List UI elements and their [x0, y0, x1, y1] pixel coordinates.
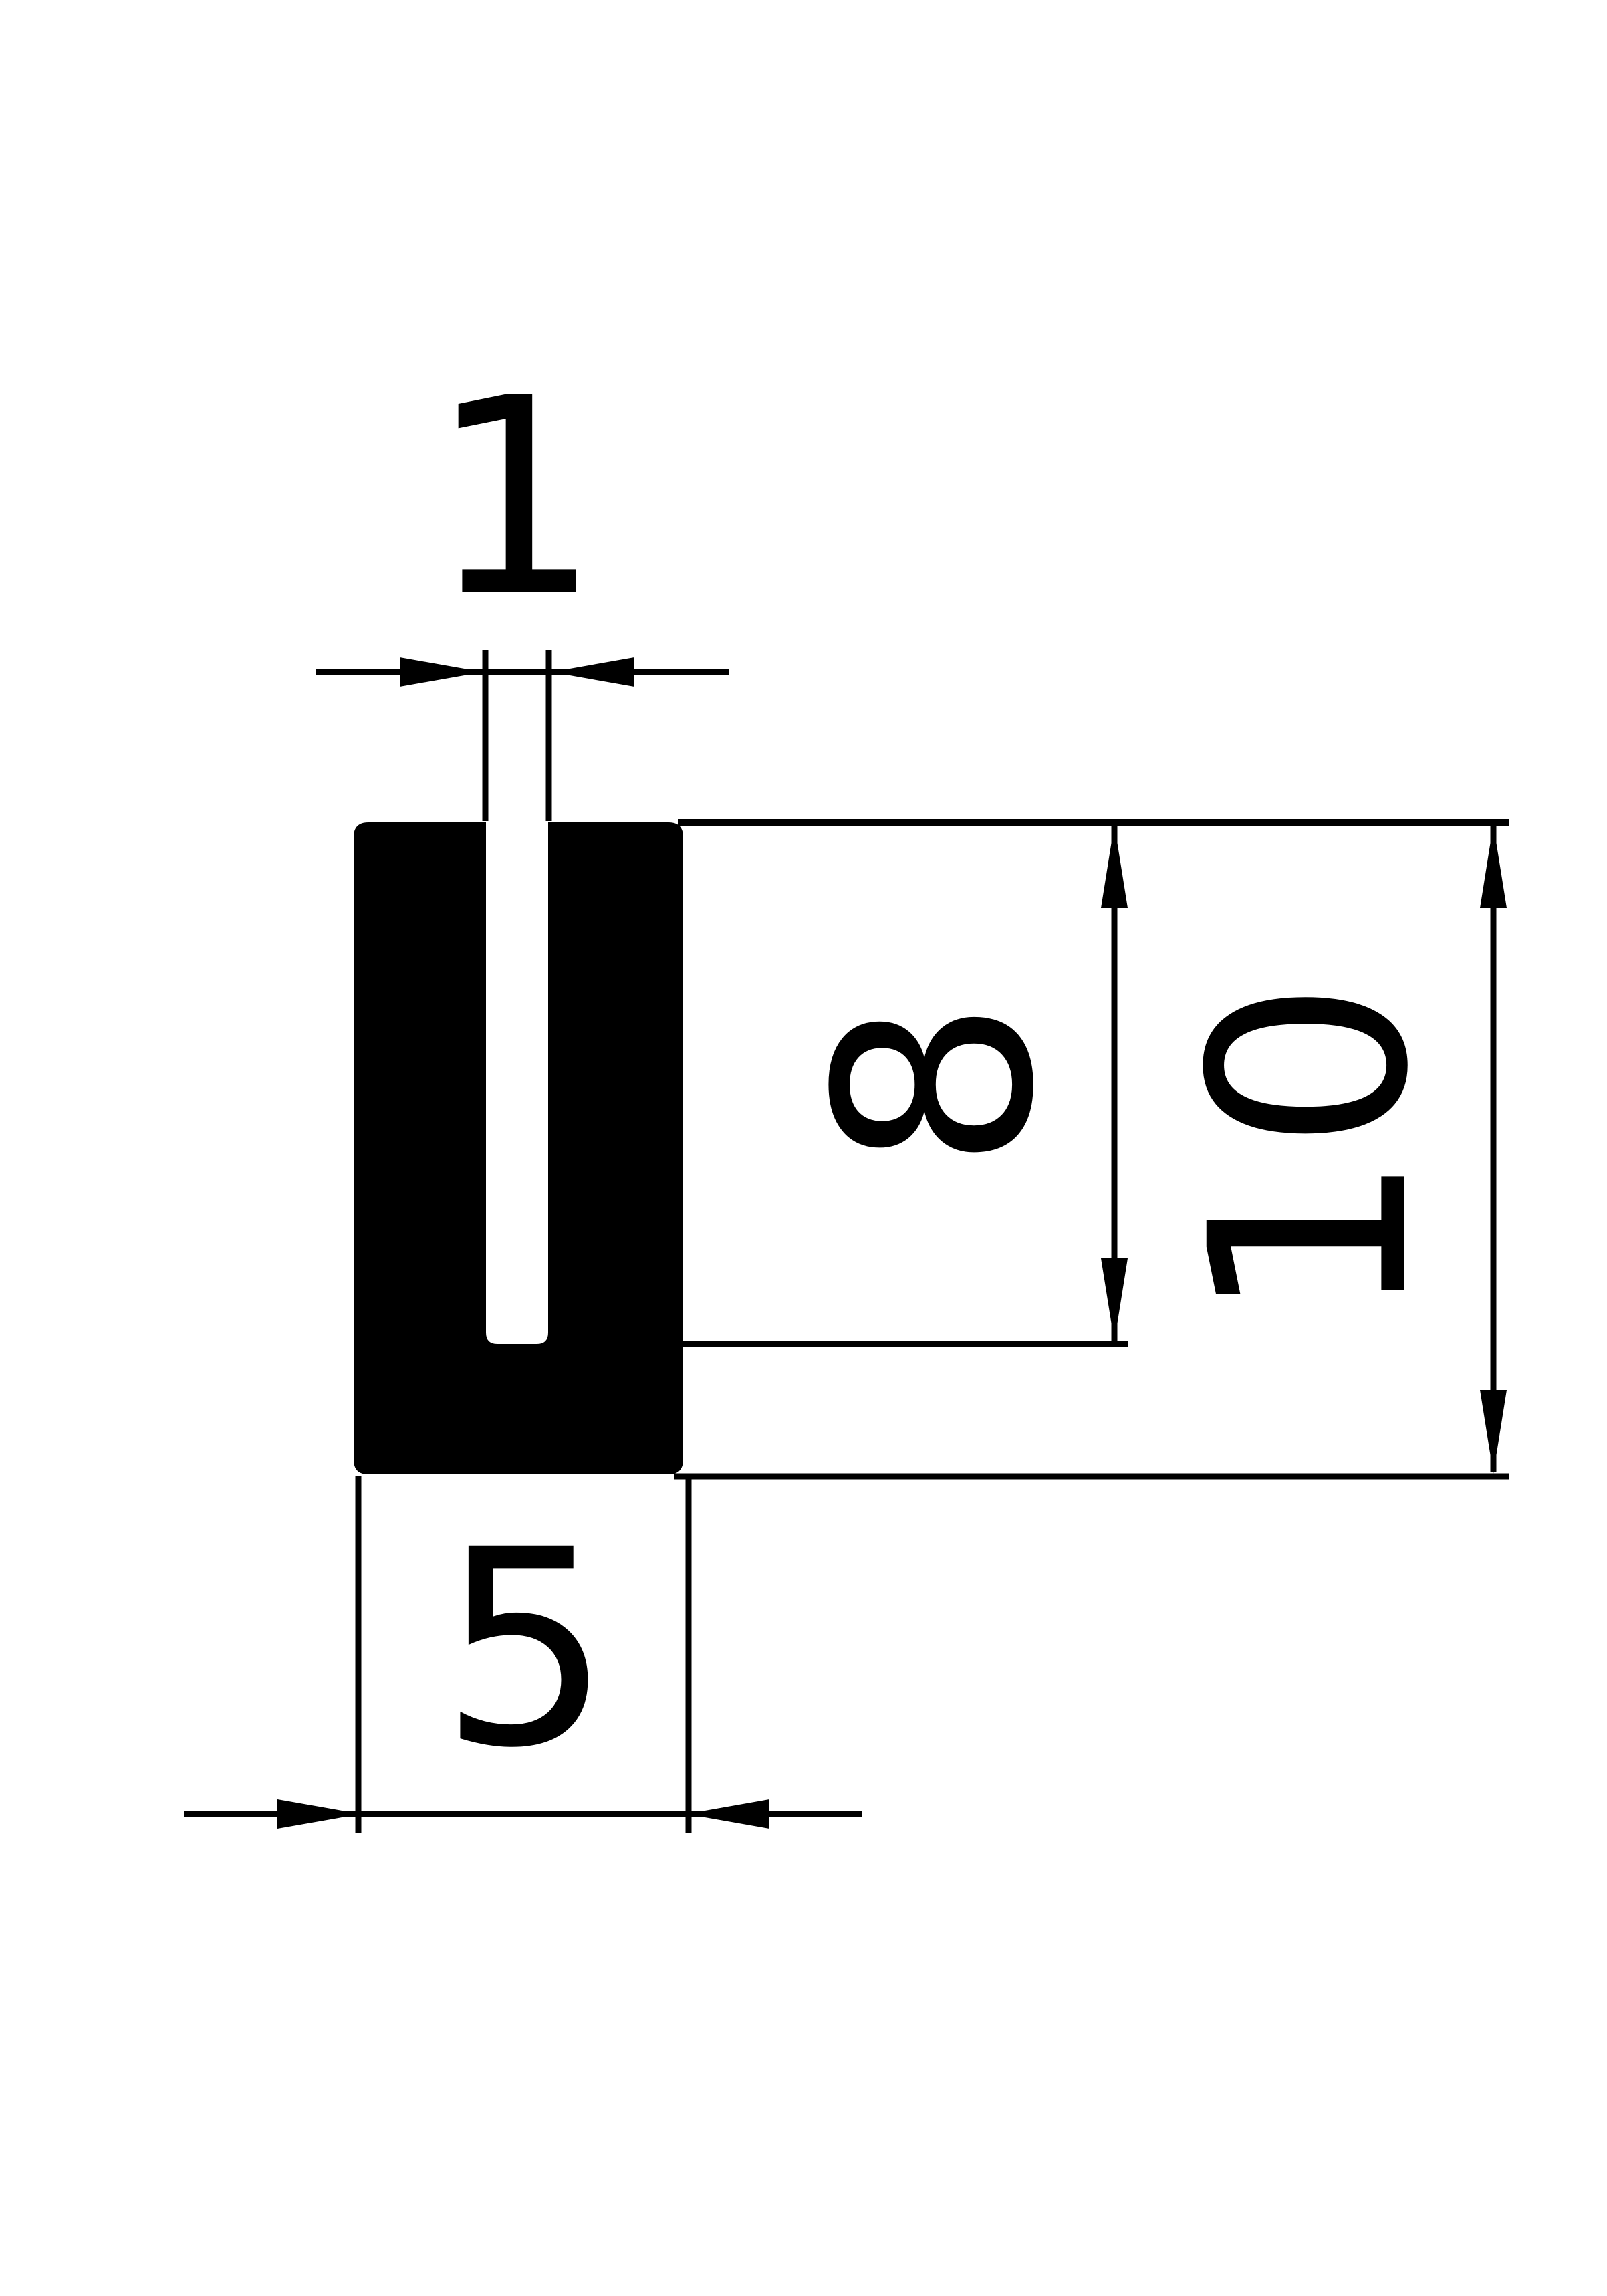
dim-groove-depth-label: 8 — [778, 998, 1094, 1171]
dim-slot-width: 1 — [316, 340, 729, 821]
u-profile-shape — [354, 822, 683, 1474]
profile-dimension-drawing: 1 8 10 5 — [0, 0, 1607, 2296]
dim-groove-depth-arrowhead-top — [1101, 824, 1128, 908]
dim-base-width: 5 — [184, 1476, 862, 1833]
dim-slot-width-arrowhead-left — [400, 657, 483, 687]
dim-slot-width-label: 1 — [428, 340, 601, 656]
dim-slot-width-arrowhead-right — [551, 657, 634, 687]
dim-groove-depth: 8 — [681, 824, 1128, 1344]
dim-base-width-arrowhead-left — [277, 1799, 361, 1829]
dim-groove-depth-arrowhead-bottom — [1101, 1258, 1128, 1342]
dim-total-height-arrowhead-top — [1480, 824, 1507, 908]
dim-base-width-arrowhead-right — [686, 1799, 769, 1829]
dim-total-height-label: 10 — [1152, 979, 1468, 1323]
drawing-page: 1 8 10 5 — [0, 0, 1607, 2296]
dim-total-height-arrowhead-bottom — [1480, 1390, 1507, 1474]
dim-base-width-label: 5 — [439, 1492, 612, 1807]
